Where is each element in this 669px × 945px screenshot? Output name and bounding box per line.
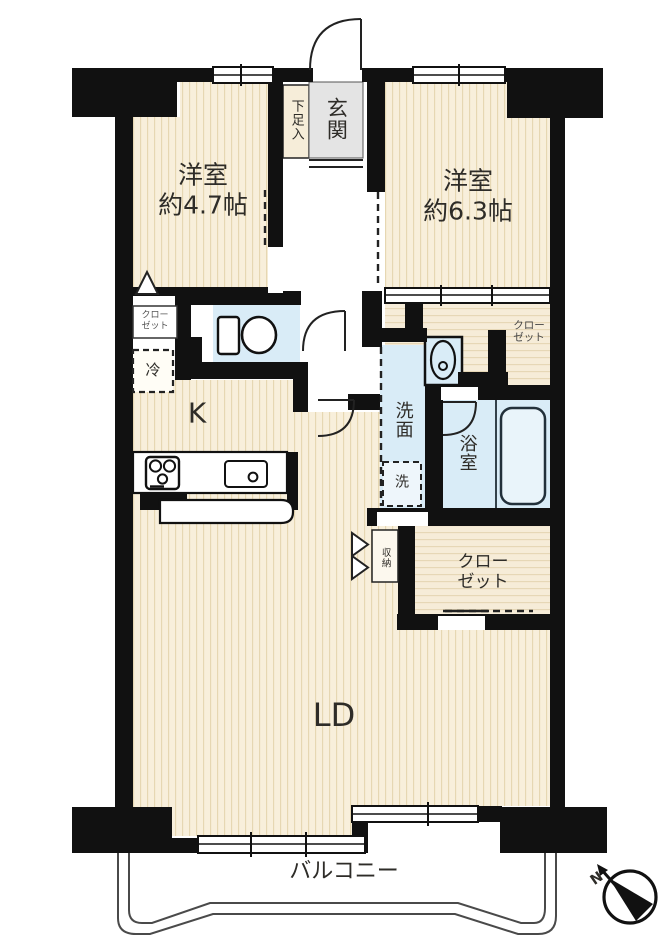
- entrance-label: 玄関: [324, 97, 349, 141]
- compass-icon: [597, 864, 656, 923]
- window-ld-right: [352, 802, 478, 826]
- shoe-cabinet-label: 下足入: [288, 99, 303, 141]
- storage-label: 収納: [379, 548, 390, 569]
- balcony-label: バルコニー: [289, 859, 399, 885]
- living-dining-label: LD: [313, 697, 355, 735]
- window-west-top: [213, 64, 273, 86]
- refrigerator-label: 冷: [145, 362, 160, 380]
- west-bedroom-name: 洋室: [158, 161, 248, 191]
- entrance-door-arc: [310, 19, 361, 70]
- toilet-icon: [218, 317, 276, 354]
- counter-island: [160, 500, 293, 523]
- east-bedroom-size: 約6.3帖: [423, 196, 513, 226]
- floorplan: 洋室 約4.7帖 洋室 約6.3帖 玄関 下足入 クロー ゼット 冷 K 洗面 …: [0, 0, 669, 945]
- window-ld-left: [198, 832, 365, 857]
- east-bedroom-name: 洋室: [423, 167, 513, 197]
- closet-south-label: クロー ゼット: [458, 552, 509, 592]
- bathroom-label: 浴室: [456, 434, 477, 472]
- kitchen-label: K: [188, 396, 206, 429]
- bathtub-icon: [501, 408, 545, 504]
- window-east-top: [413, 64, 505, 86]
- east-bedroom-label: 洋室 約6.3帖: [423, 167, 513, 226]
- west-bedroom-size: 約4.7帖: [158, 190, 248, 220]
- stove-icon: [146, 457, 179, 489]
- window-east-bottom: [385, 285, 550, 306]
- closet-west-label: クロー ゼット: [141, 310, 168, 331]
- washer-label: 洗: [395, 475, 409, 492]
- west-bedroom-label: 洋室 約4.7帖: [158, 161, 248, 220]
- sink-icon: [225, 461, 267, 487]
- closet-east-upper-label: クロー ゼット: [513, 320, 545, 345]
- floorplan-drawing: [0, 0, 669, 945]
- toilet-door-arc: [303, 311, 345, 351]
- washroom-label: 洗面: [392, 401, 413, 439]
